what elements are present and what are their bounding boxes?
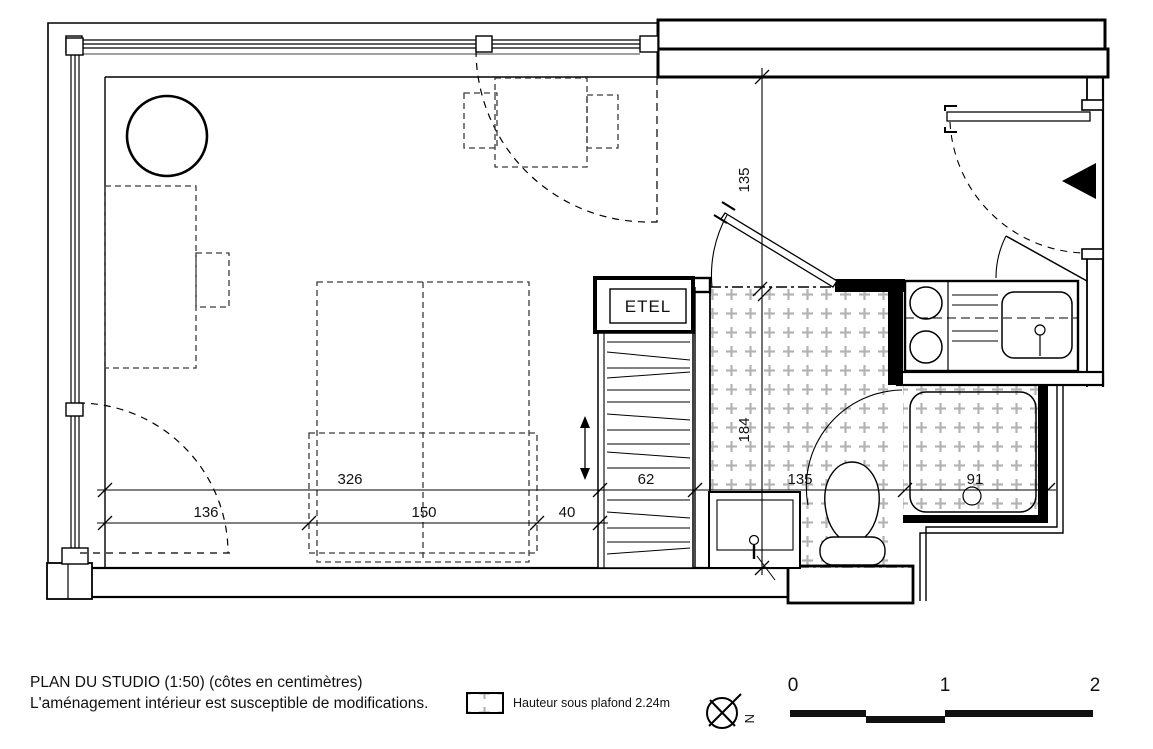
entry-door-jamb-bottom xyxy=(1082,249,1103,259)
etel-label: ETEL xyxy=(625,297,672,316)
kitchenette xyxy=(905,281,1078,371)
plan-title: PLAN DU STUDIO (1:50) (côtes en centimèt… xyxy=(30,674,363,691)
bottom-wall xyxy=(57,568,790,597)
window-swing-arc-left xyxy=(78,403,228,553)
shower-bottom-wall xyxy=(903,515,1048,523)
entry-door-jamb-top xyxy=(1082,100,1103,110)
bathroom-door-swing-arc xyxy=(711,215,727,287)
desk xyxy=(105,186,196,368)
scale-segment-1 xyxy=(790,710,866,717)
hall-boundary-dashed xyxy=(648,77,657,222)
dining-table xyxy=(495,78,587,167)
legend-label: Hauteur sous plafond 2.24m xyxy=(513,696,670,710)
footer: PLAN DU STUDIO (1:50) (côtes en centimèt… xyxy=(30,674,1100,728)
toilet-tank xyxy=(820,537,885,565)
entrance-arrow xyxy=(1062,163,1096,199)
scale-segment-2 xyxy=(866,716,945,723)
scale-label-2: 2 xyxy=(1090,675,1101,696)
compass-north-label: N xyxy=(742,714,757,723)
entry-door xyxy=(945,106,1090,281)
dim-135-v: 135 xyxy=(736,167,753,192)
bottom-left-corner-block xyxy=(47,563,92,599)
party-wall-band-upper xyxy=(658,20,1105,49)
scale-bar: 0 1 2 xyxy=(788,675,1101,723)
entry-door-leaf-45 xyxy=(1006,236,1087,281)
floor-plan-svg: ETEL xyxy=(0,0,1153,749)
bathroom-shower-divider-wall xyxy=(888,287,903,385)
compass-icon: N xyxy=(707,694,757,728)
dim-135-h: 135 xyxy=(787,471,812,488)
window-top-2 xyxy=(492,36,658,52)
dim-91: 91 xyxy=(967,471,984,488)
sliding-direction-arrow xyxy=(580,416,590,480)
round-table xyxy=(127,96,207,176)
window-left-1 xyxy=(66,38,83,416)
bathroom-door xyxy=(710,202,837,287)
dim-62: 62 xyxy=(638,471,655,488)
entry-door-arc-45 xyxy=(996,236,1006,278)
legend-swatch-hatch-icon xyxy=(468,694,502,712)
entry-door-swing-arc xyxy=(950,122,1085,253)
dim-40: 40 xyxy=(559,504,576,521)
toilet-bowl xyxy=(825,462,879,542)
desk-chair xyxy=(196,253,229,307)
dining-chair-left xyxy=(464,93,497,148)
scale-segment-3 xyxy=(945,710,1093,717)
furniture xyxy=(105,78,618,562)
scale-label-0: 0 xyxy=(788,675,799,696)
window-left-2 xyxy=(62,416,88,564)
dining-chair-right xyxy=(587,95,618,148)
dim-136: 136 xyxy=(193,504,218,521)
window-top-1 xyxy=(66,36,492,52)
legend: Hauteur sous plafond 2.24m xyxy=(467,693,670,713)
kitchen-bottom-wall xyxy=(897,372,1103,385)
bathroom-door-leaf xyxy=(721,213,837,287)
scale-label-1: 1 xyxy=(940,675,951,696)
closet-area: ETEL xyxy=(580,278,693,568)
party-wall-band-lower xyxy=(658,49,1108,77)
dim-326: 326 xyxy=(337,471,362,488)
floor-plan-page: ETEL xyxy=(0,0,1153,749)
window-swing-arc-top xyxy=(476,50,648,222)
plan-subtitle: L'aménagement intérieur est susceptible … xyxy=(30,695,428,712)
entry-door-leaf xyxy=(947,112,1090,121)
dim-184-v: 184 xyxy=(736,417,753,442)
duct-box xyxy=(788,566,913,603)
dim-150: 150 xyxy=(411,504,436,521)
